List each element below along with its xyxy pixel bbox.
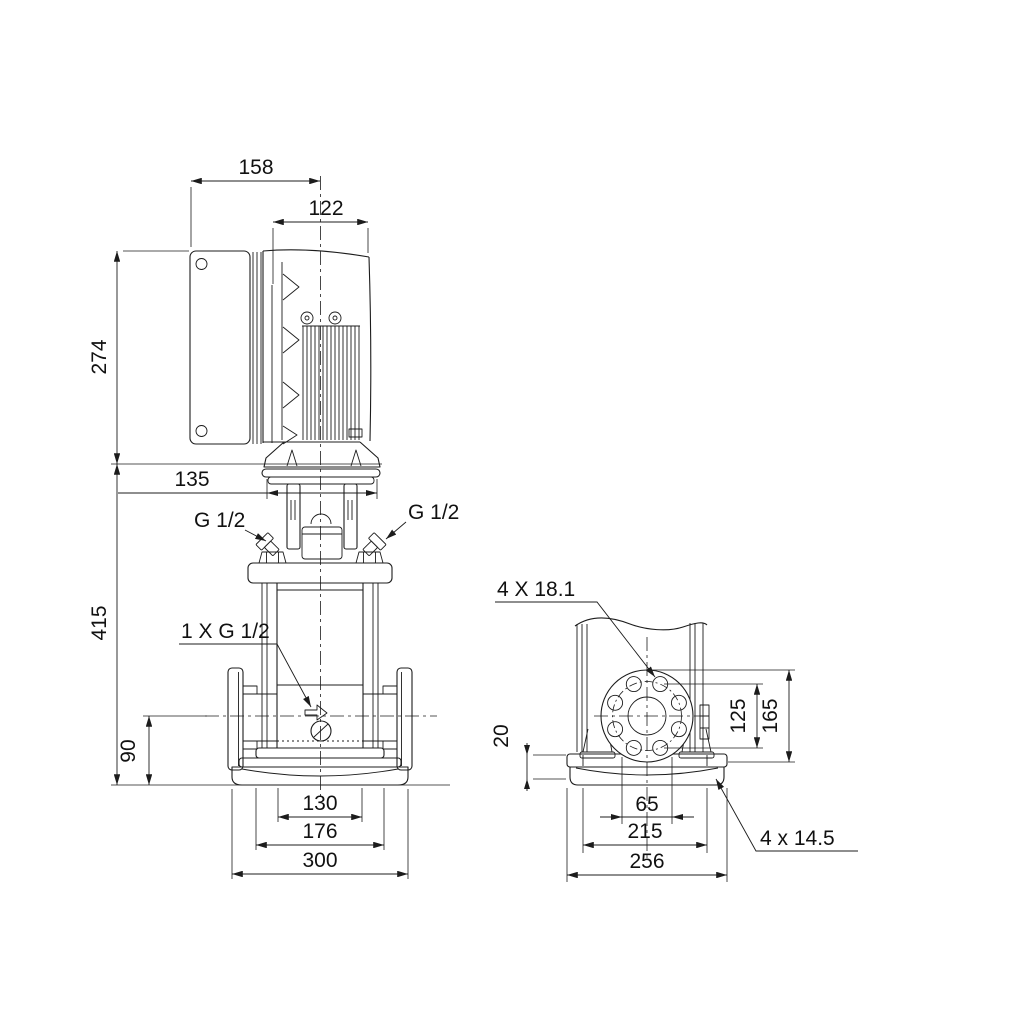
stool-top-plate bbox=[262, 469, 380, 477]
label-gauge-port-left: G 1/2 bbox=[194, 509, 266, 541]
control-box-cover bbox=[190, 251, 250, 444]
label-text-foundation-holes: 4 x 14.5 bbox=[760, 827, 835, 850]
nut-facets-left bbox=[267, 552, 279, 563]
label-gauge-port-right: G 1/2 bbox=[386, 501, 459, 539]
dim-text-256: 256 bbox=[629, 850, 664, 873]
stool-lower-plate bbox=[268, 477, 374, 484]
motor bbox=[263, 250, 380, 467]
coupling-block bbox=[302, 527, 342, 559]
motor-top-edge bbox=[263, 250, 369, 257]
nut-facets-right bbox=[364, 552, 376, 563]
base-plate bbox=[239, 758, 401, 767]
clamp-tabs bbox=[283, 274, 299, 444]
drain-plug bbox=[305, 705, 331, 741]
dim-text-125: 125 bbox=[727, 698, 750, 733]
dim-pump-height: 415 bbox=[88, 464, 117, 785]
base-pressing-curve bbox=[242, 769, 398, 776]
side-elevation-view: 158 122 274 415 90 bbox=[88, 156, 459, 879]
flange-neck-right bbox=[363, 686, 397, 749]
cover-screw-bottom bbox=[196, 426, 207, 437]
motor-right-edge bbox=[369, 257, 371, 441]
shaft-dome bbox=[311, 514, 331, 524]
dim-text-176: 176 bbox=[302, 820, 337, 843]
label-text-g12-left: G 1/2 bbox=[194, 509, 245, 532]
dim-base-plate-height: 20 bbox=[490, 724, 566, 791]
dim-coupling-width: 135 bbox=[118, 468, 377, 499]
dim-overall-width: 158 bbox=[191, 156, 320, 247]
staybolt-nut-left bbox=[259, 552, 286, 563]
coupling-guard-left bbox=[287, 484, 300, 549]
label-text-flange-holes: 4 X 18.1 bbox=[497, 578, 575, 601]
terminal-screw-left bbox=[301, 312, 313, 324]
staybolts bbox=[262, 583, 378, 748]
label-text-drain: 1 X G 1/2 bbox=[181, 620, 270, 643]
dim-text-20: 20 bbox=[490, 724, 513, 747]
nameplate-lines bbox=[700, 716, 709, 728]
flange-neck-left bbox=[243, 686, 277, 749]
terminal-screw-right-center bbox=[333, 316, 337, 320]
motor-stool bbox=[248, 469, 392, 583]
dim-text-158: 158 bbox=[238, 156, 273, 179]
foot-pad-left bbox=[580, 752, 615, 758]
dim-text-274: 274 bbox=[88, 339, 111, 374]
staybolt-nut-right bbox=[356, 552, 383, 563]
drawing-svg: 158 122 274 415 90 bbox=[0, 0, 1024, 1024]
control-box bbox=[190, 251, 261, 444]
label-foundation-holes: 4 x 14.5 bbox=[716, 779, 858, 851]
pump-base bbox=[232, 748, 408, 785]
terminal-screw-right bbox=[329, 312, 341, 324]
flange-face-right bbox=[397, 668, 412, 770]
dim-text-135: 135 bbox=[174, 468, 209, 491]
dim-text-215: 215 bbox=[627, 820, 662, 843]
pump-dimensional-drawing: 158 122 274 415 90 bbox=[0, 0, 1024, 1024]
pump-column bbox=[262, 583, 378, 748]
foot-pad-right bbox=[679, 752, 714, 758]
control-box-ribs bbox=[253, 252, 261, 444]
dim-text-415: 415 bbox=[88, 605, 111, 640]
drain-plug-slot bbox=[314, 724, 328, 737]
label-text-g12-right: G 1/2 bbox=[408, 501, 459, 524]
dim-text-90: 90 bbox=[117, 739, 140, 762]
dim-sleeve-width: 130 bbox=[278, 788, 362, 822]
break-line bbox=[575, 618, 707, 630]
terminal-screw-left-center bbox=[305, 316, 309, 320]
pump-head-flange bbox=[248, 563, 392, 583]
label-flange-holes: 4 X 18.1 bbox=[495, 578, 655, 677]
cover-screw-top bbox=[196, 259, 207, 270]
dim-text-122: 122 bbox=[308, 197, 343, 220]
dim-text-165: 165 bbox=[759, 698, 782, 733]
dim-text-300: 300 bbox=[302, 849, 337, 872]
coupling-guard-right bbox=[344, 484, 357, 549]
end-elevation-view: 4 X 18.1 125 165 20 bbox=[490, 578, 858, 882]
base-skirt bbox=[256, 748, 384, 758]
flow-direction-arrow bbox=[305, 705, 327, 720]
dim-drive-height: 274 bbox=[88, 251, 382, 464]
chamber-seams bbox=[277, 590, 363, 685]
flange-face-left bbox=[228, 668, 243, 770]
fan-cover-flare bbox=[264, 442, 380, 467]
sleeve-walls bbox=[277, 583, 363, 748]
dim-text-130: 130 bbox=[302, 792, 337, 815]
cooling-fins bbox=[302, 326, 360, 440]
dim-text-65: 65 bbox=[635, 793, 658, 816]
nameplate-tab bbox=[700, 705, 709, 739]
